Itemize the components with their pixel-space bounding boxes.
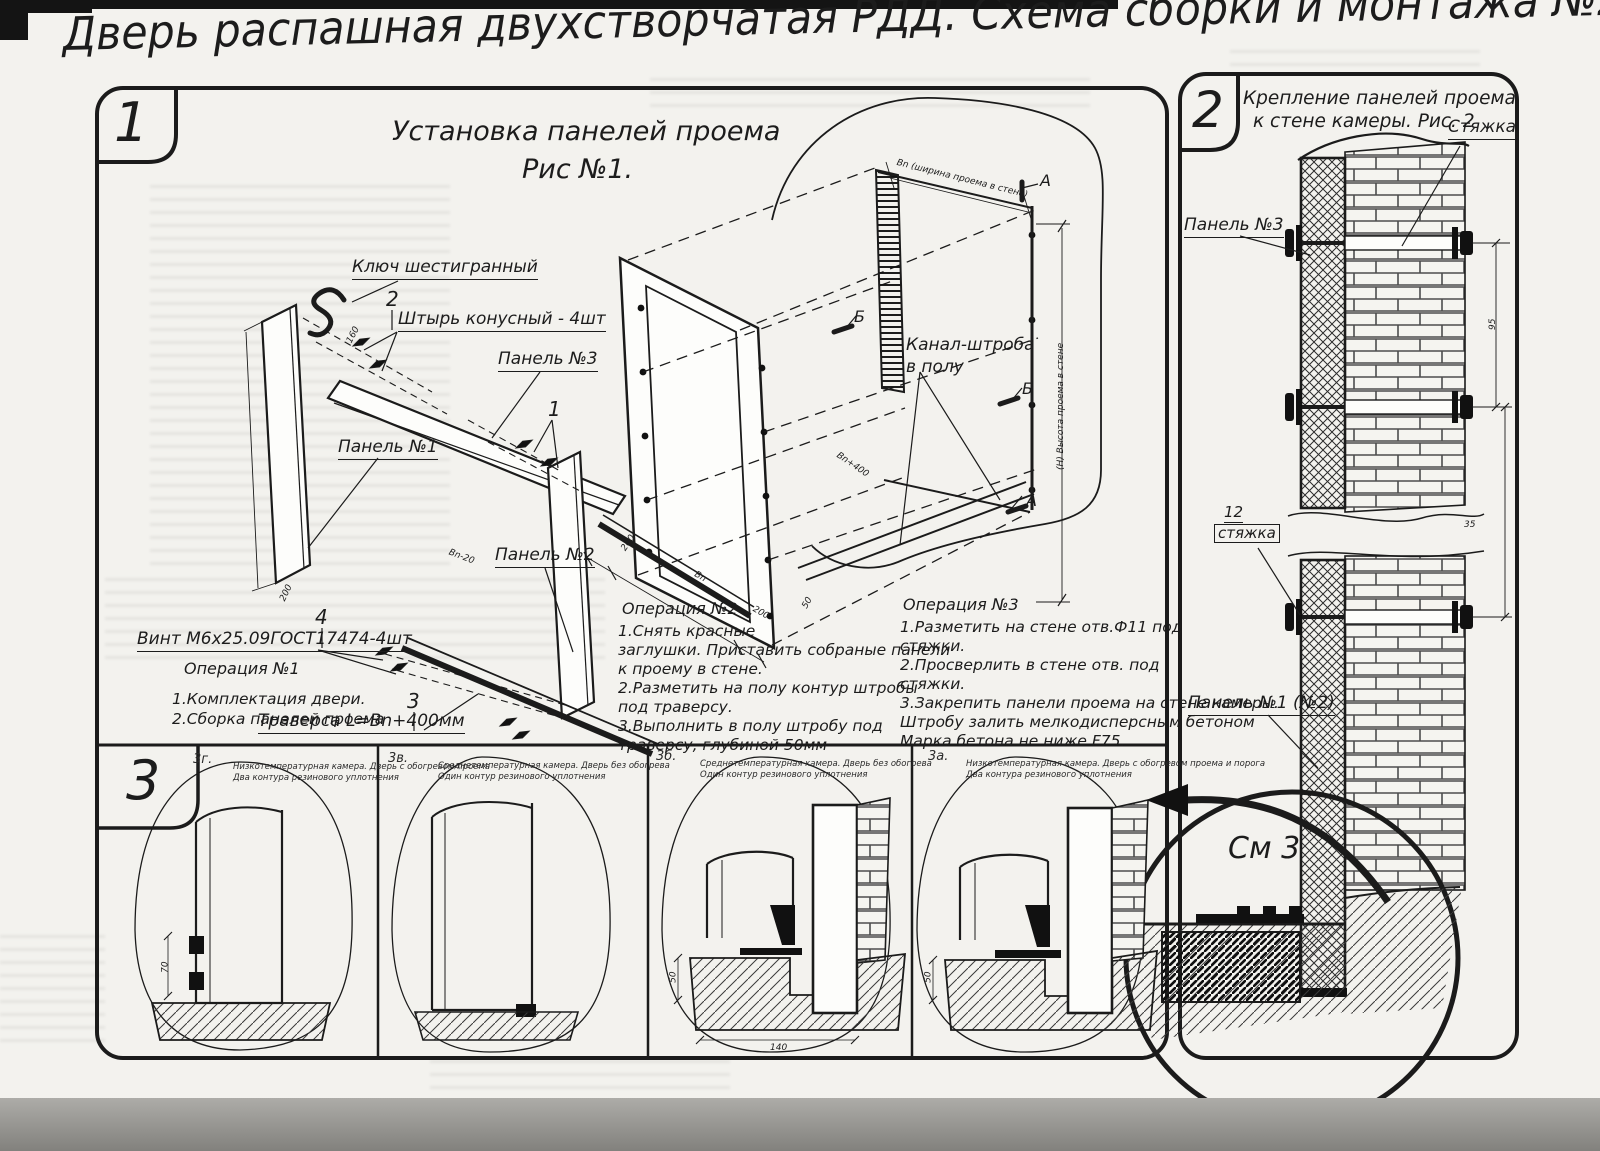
drawing-layer bbox=[0, 0, 1600, 1151]
dim-label: 140 bbox=[770, 1043, 787, 1053]
see-detail-label: См 3 bbox=[1228, 832, 1300, 867]
callout-hex-key: Ключ шестигранный bbox=[352, 258, 538, 280]
operation2-line: к проему в стене. bbox=[618, 660, 763, 679]
wall-attachment-drawing bbox=[1126, 134, 1512, 1124]
callout-panel2: Панель №2 bbox=[495, 546, 595, 568]
detail-3b-id: 3б. bbox=[656, 750, 676, 765]
seal-profile bbox=[740, 905, 802, 955]
callout-panel3: Панель №3 bbox=[498, 350, 598, 372]
callout-floor-channel: в полу bbox=[906, 358, 964, 378]
operation2-title: Операция №2 bbox=[622, 600, 738, 618]
figure2-title: Крепление панелей проема bbox=[1243, 88, 1516, 109]
operation3-line: Штробу залить мелкодисперсным бетоном bbox=[900, 713, 1255, 732]
operation2-line: 1.Снять красные bbox=[618, 622, 755, 641]
operation3-line: 2.Просверлить в стене отв. под bbox=[900, 656, 1159, 675]
figure2-subtitle: к стене камеры. Рис. 2 bbox=[1253, 111, 1475, 132]
blueprint-page: Дверь распашная двухстворчатая РДД. Схем… bbox=[0, 0, 1600, 1151]
dim-label: 95 bbox=[1488, 319, 1498, 330]
threshold-details-drawing bbox=[135, 757, 1157, 1052]
callout-item1-number: 1 bbox=[548, 398, 561, 421]
callout-traverse-number: 3 bbox=[407, 690, 420, 713]
detail-3a-id: 3а. bbox=[928, 750, 948, 765]
operation2-line: под траверсу. bbox=[618, 698, 733, 717]
operation1-title: Операция №1 bbox=[184, 660, 300, 678]
callout-pin-number: 2 bbox=[386, 288, 399, 311]
detail-3v-id: 3в. bbox=[388, 752, 408, 767]
callout-tie: Стяжка bbox=[1448, 118, 1516, 140]
detail-3g-caption: Два контура резинового уплотнения bbox=[233, 774, 399, 784]
operation3-title: Операция №3 bbox=[903, 596, 1019, 614]
section2-number: 2 bbox=[1192, 82, 1224, 140]
operation3-line: стяжки. bbox=[900, 675, 965, 694]
detail-3a-caption: Низкотемпературная камера. Дверь с обогр… bbox=[966, 760, 1265, 770]
detail-3g-id: 3г. bbox=[193, 753, 212, 768]
callout-panel3-fig2: Панель №3 bbox=[1184, 216, 1284, 238]
callout-panel12: Панель №1 (№2) bbox=[1188, 694, 1335, 716]
section-marker-a: А bbox=[1026, 492, 1037, 510]
figure1-subtitle: Рис №1. bbox=[522, 154, 633, 185]
operation3-line: стяжки. bbox=[900, 637, 965, 656]
operation2-line: траверсу, глубиной 50мм bbox=[618, 736, 827, 755]
detail-3b-caption: Один контур резинового уплотнения bbox=[700, 771, 867, 781]
figure1-title: Установка панелей проема bbox=[392, 116, 780, 147]
floor-seal-profile bbox=[1196, 906, 1304, 923]
detail-3v-caption: Один контур резинового уплотнения bbox=[438, 773, 605, 783]
callout-tie12-number: 12 bbox=[1224, 504, 1243, 523]
operation3-line: 1.Разметить на стене отв.Ф11 под bbox=[900, 618, 1182, 637]
operation2-line: 2.Разметить на полу контур штробы bbox=[618, 679, 918, 698]
section1-number: 1 bbox=[114, 92, 148, 154]
dim-label: 50 bbox=[924, 971, 934, 982]
section-marker-b: Б bbox=[854, 308, 865, 326]
callout-screw-number: 4 bbox=[315, 606, 328, 629]
detail-3v-caption: Среднетемпературная камера. Дверь без об… bbox=[438, 762, 670, 772]
operation2-line: 3.Выполнить в полу штробу под bbox=[618, 717, 883, 736]
scan-edge-band bbox=[0, 1098, 1600, 1151]
section-marker-a: А bbox=[1040, 172, 1051, 190]
callout-screw: Винт М6х25.09ГОСТ17474-4шт bbox=[137, 630, 412, 652]
detail-3b-caption: Среднетемпературная камера. Дверь без об… bbox=[700, 760, 932, 770]
hex-key-icon bbox=[310, 290, 344, 335]
callout-tie12: стяжка bbox=[1214, 524, 1280, 543]
section-marker-b: Б bbox=[1022, 380, 1033, 398]
dim-label: 35 bbox=[1464, 520, 1475, 530]
callout-panel1: Панель №1 bbox=[338, 438, 438, 460]
callout-floor-channel: Канал-штроба bbox=[906, 336, 1035, 356]
dim-label: 70 bbox=[161, 961, 171, 972]
operation1-line: 2.Сборка панелей проема bbox=[172, 710, 384, 729]
dim-opening-height: (Н) Высота проема в стене bbox=[1056, 343, 1066, 470]
dim-label: 50 bbox=[669, 971, 679, 982]
detail-3a-caption: Два контура резинового уплотнения bbox=[966, 771, 1132, 781]
callout-pin: Штырь конусный - 4шт bbox=[398, 310, 606, 332]
section3-number: 3 bbox=[126, 750, 160, 812]
operation1-line: 1.Комплектация двери. bbox=[172, 690, 366, 709]
